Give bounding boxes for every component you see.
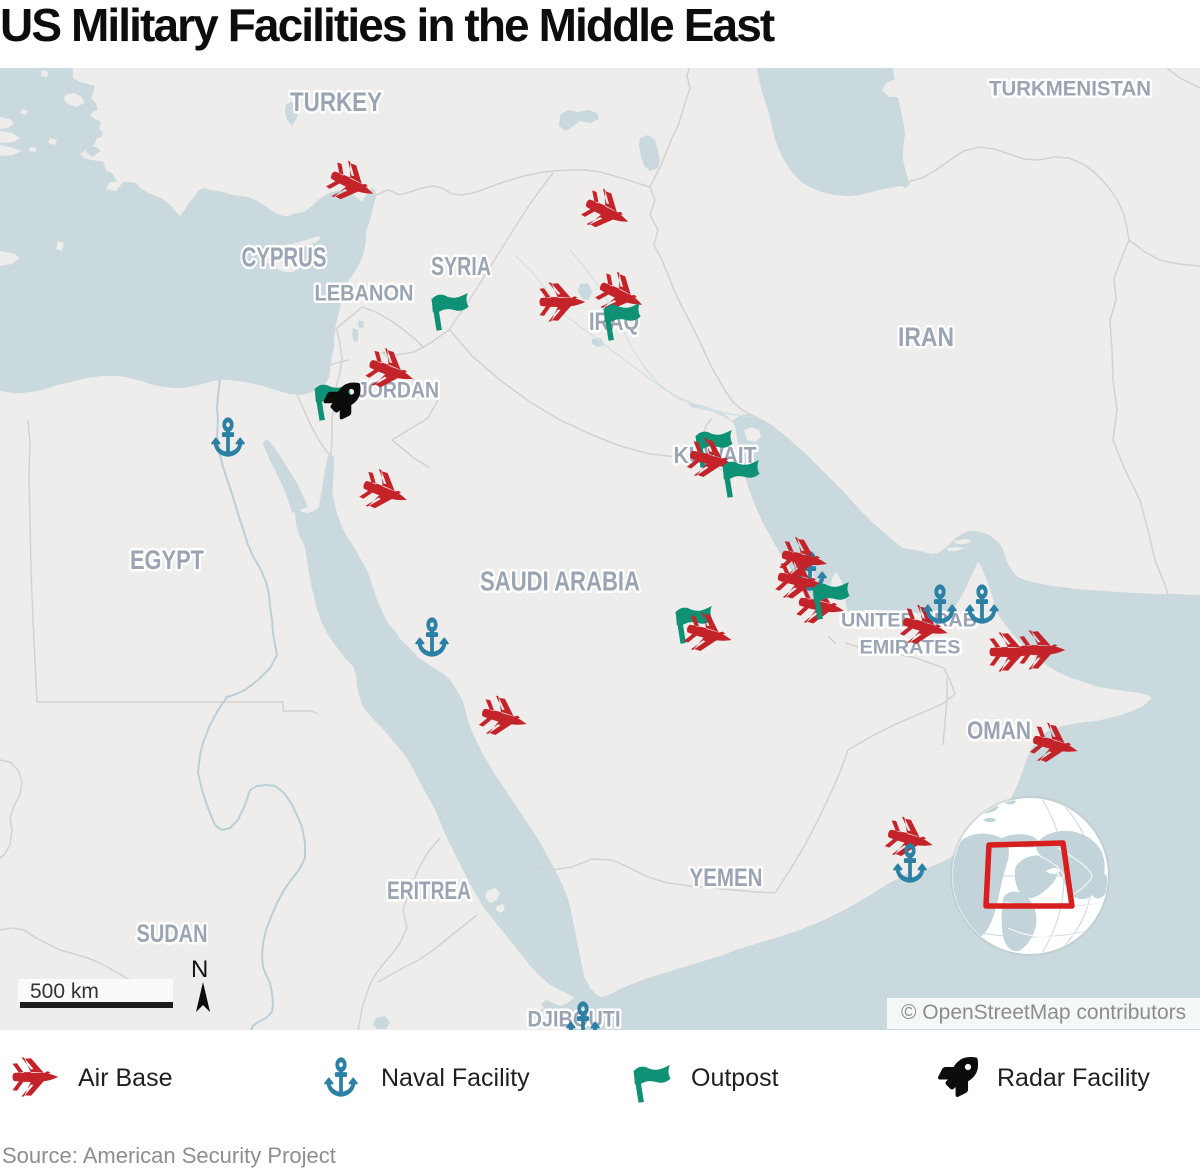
svg-text:ERITREA: ERITREA — [387, 877, 471, 905]
svg-text:IRAN: IRAN — [898, 322, 954, 352]
svg-text:OMAN: OMAN — [967, 717, 1031, 745]
svg-text:LEBANON: LEBANON — [315, 281, 414, 306]
svg-text:Air Base: Air Base — [78, 1064, 172, 1092]
svg-text:EGYPT: EGYPT — [130, 545, 204, 575]
svg-text:Radar Facility: Radar Facility — [997, 1064, 1150, 1092]
svg-text:YEMEN: YEMEN — [690, 864, 763, 892]
svg-text:JORDAN: JORDAN — [357, 378, 439, 403]
svg-text:SYRIA: SYRIA — [431, 251, 491, 281]
svg-text:CYPRUS: CYPRUS — [242, 242, 327, 273]
svg-text:SAUDI ARABIA: SAUDI ARABIA — [480, 566, 640, 597]
svg-text:SUDAN: SUDAN — [137, 920, 208, 948]
svg-text:TURKMENISTAN: TURKMENISTAN — [989, 78, 1151, 101]
svg-text:Outpost: Outpost — [691, 1064, 779, 1092]
svg-text:Naval Facility: Naval Facility — [381, 1064, 530, 1092]
svg-text:Source: American Security Proj: Source: American Security Project — [2, 1143, 336, 1168]
svg-text:TURKEY: TURKEY — [290, 87, 382, 117]
